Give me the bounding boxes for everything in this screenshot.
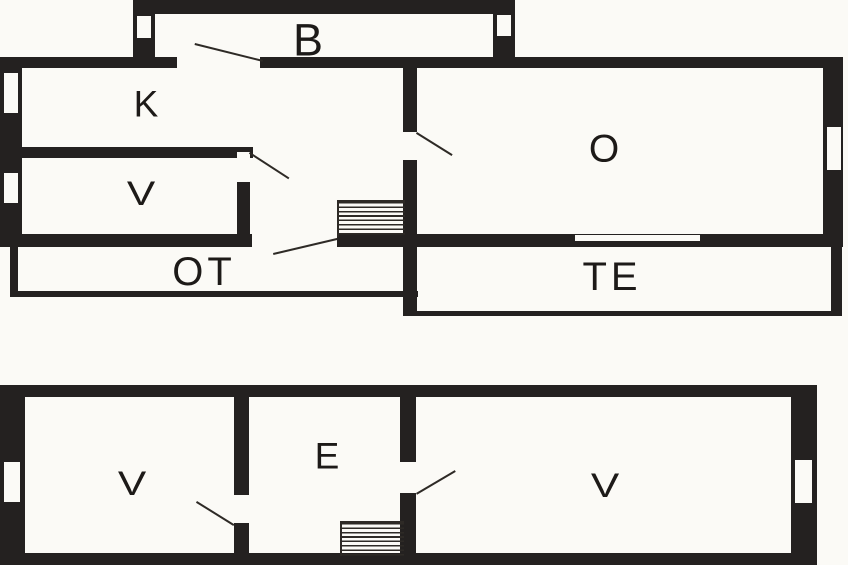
door-swing-v-upper	[249, 152, 290, 179]
stairs-upper	[337, 200, 405, 237]
wall-upper-top-left	[0, 57, 177, 68]
window-v-ground-right	[795, 460, 812, 503]
wall-ground-top	[0, 385, 817, 397]
window-te-slot	[575, 235, 700, 241]
wall-upper-top-right	[260, 57, 843, 68]
wall-te-bottom	[403, 311, 842, 316]
wall-vleft-e	[234, 397, 249, 555]
room-label-e: E	[315, 438, 340, 475]
door-opening-e-vright	[400, 462, 416, 493]
room-label-b: B	[293, 18, 323, 63]
door-swing-e-vright	[416, 470, 456, 495]
room-label-ot: OT	[172, 252, 236, 292]
window-k	[4, 73, 18, 113]
door-opening-v-upper	[237, 152, 250, 182]
door-swing-o	[416, 132, 453, 156]
wall-te-right	[831, 247, 842, 316]
door-swing-ot	[273, 238, 338, 255]
room-label-v-upper: V	[127, 177, 155, 211]
window-v-ground-left	[4, 462, 20, 502]
room-label-v-ground-right: V	[591, 469, 619, 503]
wall-central	[403, 57, 417, 316]
window-v-upper	[4, 173, 18, 203]
wall-ot-left	[10, 247, 18, 293]
door-opening-vleft-e	[234, 495, 249, 523]
window-o	[827, 127, 841, 170]
window-b-left	[137, 16, 151, 38]
door-swing-vleft-e	[196, 501, 234, 526]
window-b-right	[497, 15, 511, 36]
door-opening-o	[403, 132, 417, 160]
room-label-k: K	[134, 86, 159, 123]
wall-upper-bottom-left	[0, 234, 252, 247]
room-label-v-ground-left: V	[118, 467, 146, 501]
door-swing-b	[195, 43, 263, 62]
floor-plan-canvas: B K V O OT TE V E V	[0, 0, 848, 565]
stairs-ground	[340, 521, 404, 556]
wall-b-top	[133, 0, 515, 14]
room-label-te: TE	[582, 257, 641, 297]
room-label-o: O	[589, 130, 619, 169]
wall-k-v-divider	[0, 147, 253, 158]
